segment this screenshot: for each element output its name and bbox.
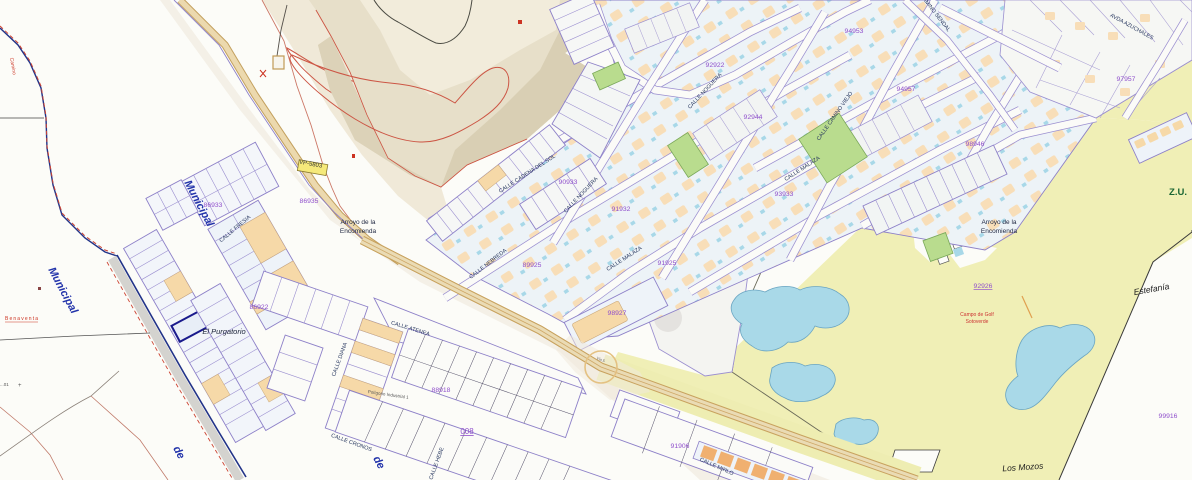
svg-text:86922: 86922 — [250, 304, 269, 311]
svg-text:86935: 86935 — [300, 198, 319, 205]
svg-text:91906: 91906 — [671, 443, 690, 450]
svg-text:91925: 91925 — [658, 260, 677, 267]
svg-text:91932: 91932 — [612, 206, 631, 213]
svg-text:Arroyo de la: Arroyo de la — [340, 219, 375, 226]
svg-text:Benaventa: Benaventa — [5, 316, 38, 322]
svg-text:...01: ...01 — [0, 382, 9, 387]
svg-text:89925: 89925 — [523, 262, 542, 269]
svg-text:Z.U.: Z.U. — [1169, 187, 1187, 198]
svg-text:92944: 92944 — [744, 114, 763, 121]
svg-text:94953: 94953 — [845, 28, 864, 35]
svg-text:008: 008 — [460, 427, 474, 436]
svg-text:+: + — [18, 383, 22, 389]
svg-text:92922: 92922 — [706, 62, 725, 69]
svg-text:Campo de Golf: Campo de Golf — [960, 312, 994, 318]
svg-text:92926: 92926 — [974, 283, 993, 290]
svg-text:98927: 98927 — [608, 310, 627, 317]
svg-text:97957: 97957 — [1117, 76, 1136, 83]
svg-text:Arroyo de la: Arroyo de la — [981, 219, 1016, 226]
svg-text:Encomienda: Encomienda — [340, 228, 377, 235]
svg-text:El Purgatorio: El Purgatorio — [202, 327, 245, 336]
svg-text:Encomienda: Encomienda — [981, 228, 1018, 235]
svg-text:Sotoverde: Sotoverde — [966, 319, 989, 325]
svg-text:90933: 90933 — [559, 179, 578, 186]
svg-text:93933: 93933 — [775, 191, 794, 198]
svg-text:98946: 98946 — [966, 141, 985, 148]
svg-text:94957: 94957 — [897, 86, 916, 93]
svg-text:88918: 88918 — [432, 387, 451, 394]
svg-text:99916: 99916 — [1159, 413, 1178, 420]
